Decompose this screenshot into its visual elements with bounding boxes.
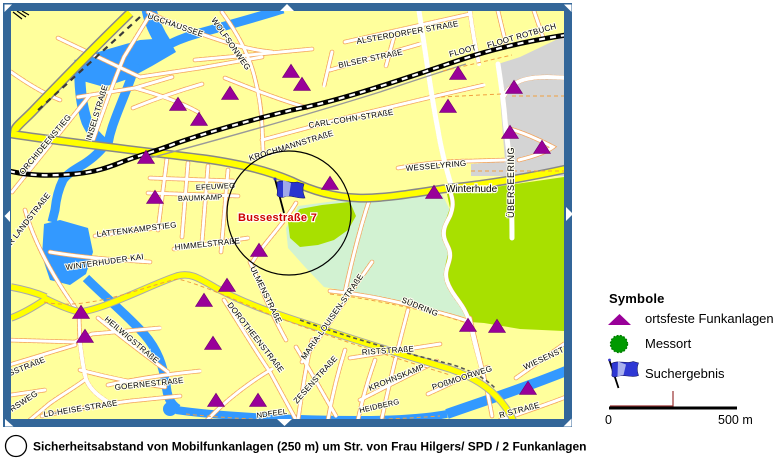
svg-text:Messort: Messort: [645, 336, 692, 351]
svg-text:Sicherheitsabstand von Mobilfu: Sicherheitsabstand von Mobilfunkanlagen …: [33, 440, 586, 454]
svg-text:ÜBERSEERING: ÜBERSEERING: [506, 147, 516, 218]
svg-text:Winterhude: Winterhude: [446, 184, 498, 195]
svg-text:500 m: 500 m: [718, 413, 753, 427]
svg-text:BAUMKAMP: BAUMKAMP: [178, 192, 223, 203]
svg-text:Bussestraße 7: Bussestraße 7: [238, 212, 317, 224]
svg-text:ortsfeste Funkanlagen: ortsfeste Funkanlagen: [645, 311, 774, 326]
svg-text:Symbole: Symbole: [609, 291, 665, 306]
svg-text:Suchergebnis: Suchergebnis: [645, 366, 725, 381]
svg-text:0: 0: [605, 413, 612, 427]
